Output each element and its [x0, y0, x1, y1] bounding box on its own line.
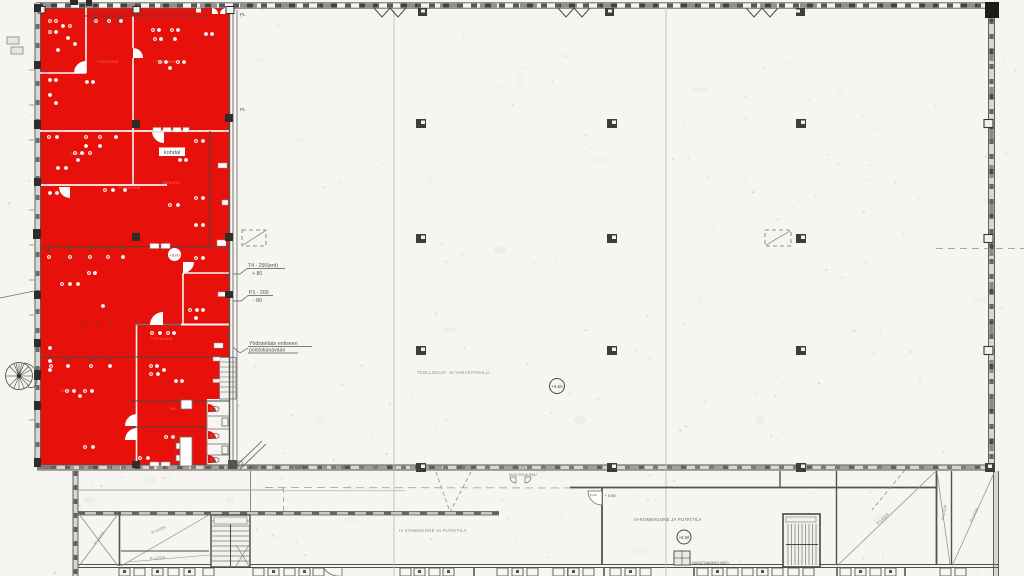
- svg-text:PL: PL: [240, 12, 246, 17]
- svg-text:- 80: - 80: [253, 298, 262, 304]
- svg-text:+6.00: +6.00: [169, 253, 180, 258]
- svg-text:Yhdistetään entiseen: Yhdistetään entiseen: [249, 341, 298, 347]
- svg-text:TYOHUONE: TYOHUONE: [155, 59, 178, 64]
- svg-text:poistokanavaan: poistokanavaan: [249, 348, 285, 354]
- svg-text:HUOLTOAUKKO (651): HUOLTOAUKKO (651): [692, 561, 729, 565]
- svg-text:kohdal: kohdal: [164, 150, 180, 156]
- svg-text:+ 80: + 80: [252, 271, 262, 277]
- svg-text:+6.50: +6.50: [551, 384, 563, 389]
- svg-text:Pv10: Pv10: [590, 493, 597, 497]
- svg-text:PL: PL: [240, 107, 246, 112]
- svg-text:TYOHUONE: TYOHUONE: [96, 59, 119, 64]
- svg-text:Beton/Rst: Beton/Rst: [512, 466, 526, 470]
- svg-text:T4 - 250(ent): T4 - 250(ent): [248, 263, 278, 269]
- svg-text:P1 - 200: P1 - 200: [249, 290, 269, 296]
- svg-text:KAHVIO: KAHVIO: [70, 151, 85, 156]
- svg-text:WC: WC: [170, 406, 177, 411]
- svg-text:IV KONEHUONE JA PUTKITILA: IV KONEHUONE JA PUTKITILA: [399, 528, 467, 533]
- svg-text:HUOLTOLUUKKU: HUOLTOLUUKKU: [509, 473, 537, 477]
- svg-text:TYOHUONE: TYOHUONE: [118, 185, 141, 190]
- svg-text:+ 6.50: + 6.50: [605, 493, 617, 498]
- svg-text:TSTO: TSTO: [60, 388, 71, 393]
- svg-text:IV-KONEHUONE JA PUTKITILA: IV-KONEHUONE JA PUTKITILA: [634, 517, 702, 522]
- svg-text:TYOHUONE: TYOHUONE: [150, 336, 173, 341]
- svg-text:VARASTO: VARASTO: [162, 180, 181, 185]
- svg-text:+6.50: +6.50: [679, 535, 690, 540]
- svg-text:TEOLLISUUS- JA VARASTOHALLI: TEOLLISUUS- JA VARASTOHALLI: [417, 370, 490, 375]
